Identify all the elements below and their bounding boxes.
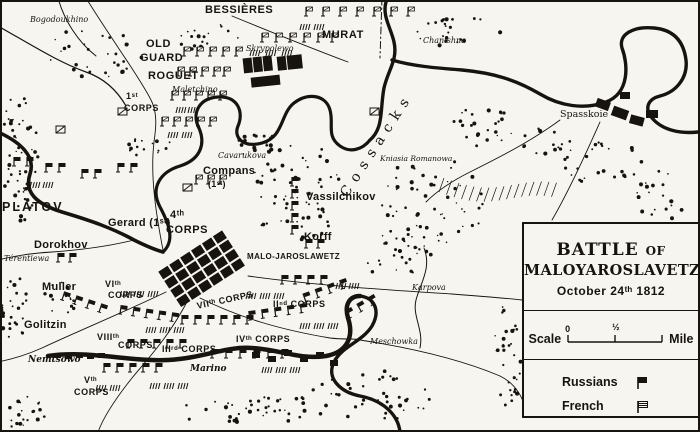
legend-entry-russians: Russians: [562, 370, 698, 394]
map-label-cavarukova: Cavarukova: [218, 152, 266, 160]
legend-title-of: OF: [646, 244, 666, 258]
map-label-spasskoie: Spasskoie: [560, 110, 608, 120]
map-label-murat: MURAT: [322, 30, 364, 41]
legend-date: October 24ᵗʰ 1812: [524, 284, 698, 298]
map-label-corps6-b: CORPS: [108, 291, 143, 300]
map-label-corps5-a: Vᵗʰ: [84, 376, 97, 385]
map-label-compans-a: Compans: [203, 166, 255, 177]
map-label-corps4-a: 4ᵗʰ: [170, 210, 184, 221]
map-label-corps8-a: VIIIᵗʰ: [97, 333, 119, 342]
scale-bar: 0 ½: [567, 323, 663, 347]
map-label-corps6-a: VIᵗʰ: [105, 280, 121, 289]
battle-map: BogodoukhinoBESSIÈRESMURATSkrypolewoOLDG…: [0, 0, 700, 432]
map-label-dorokhov: Dorokhov: [34, 240, 88, 251]
russians-label: Russians: [562, 375, 624, 389]
map-label-corps8-b: CORPS: [118, 341, 153, 350]
map-label-terentiewa: Térentiewa: [4, 255, 49, 263]
map-label-old-guard-2: GUARD: [140, 53, 183, 64]
scale-tick-0: 0: [565, 324, 570, 334]
legend-box: BATTLE OF MALOYAROSLAVETZ October 24ᵗʰ 1…: [522, 222, 698, 418]
map-label-bogodoukhino: Bogodoukhino: [30, 16, 88, 24]
map-label-corps5-b: CORPS: [74, 388, 109, 397]
map-label-karpova: Karpova: [412, 284, 446, 292]
map-label-marino: Marino: [190, 365, 227, 374]
russian-flag-icon: [634, 374, 652, 390]
scale-label: Scale: [529, 332, 562, 347]
legend-divider-2: [524, 359, 698, 360]
map-label-cossacks: Cossacks: [338, 90, 416, 199]
map-label-gerard: Gerard (1ˢᵗ): [108, 218, 171, 229]
map-label-chanishna: Chanishna: [423, 37, 466, 45]
french-flag-icon: [634, 398, 652, 414]
map-label-muller: Muller: [42, 282, 76, 293]
map-label-malo-jaroslawetz: MALO-JAROSLAWETZ: [247, 253, 340, 261]
map-label-compans-b: (1ˢᵗ): [208, 180, 226, 189]
map-label-corps2: IIⁿᵈ CORPS: [273, 300, 326, 309]
map-label-corps1-a: 1ˢᵗ: [126, 92, 138, 101]
map-label-meschowka: Meschowka: [370, 338, 418, 346]
scale-bar-row: Scale 0 ½ Mile: [524, 311, 698, 347]
map-label-platov: PLATOV: [2, 201, 64, 214]
legend-title: BATTLE OF: [524, 240, 698, 260]
legend-title-place: MALOYAROSLAVETZ: [524, 262, 698, 279]
map-label-maletchino: Maletchino: [172, 86, 218, 94]
scale-tick-half: ½: [612, 322, 620, 332]
map-label-corps4iv: IVᵗʰ CORPS: [236, 335, 290, 344]
scale-unit: Mile: [669, 332, 693, 347]
map-label-nemtsowo: Nemtsowo: [28, 356, 80, 365]
map-label-corps4-b: CORPS: [166, 225, 208, 236]
map-label-bessieres: BESSIÈRES: [205, 5, 273, 16]
map-label-corps7: VIIᵗʰ CORPS: [196, 290, 254, 311]
map-label-golitzin: Golitzin: [24, 320, 67, 331]
map-label-kniasia-romanowa: Kniasia Romanowa: [380, 155, 452, 163]
map-label-roguet: ROGUET: [148, 71, 199, 82]
legend-entry-french: French: [562, 394, 698, 418]
map-label-corps1-b: CORPS: [124, 104, 159, 113]
map-label-korff: Korff: [304, 232, 332, 243]
map-label-old-guard-1: OLD: [146, 39, 171, 50]
legend-entries: Russians French: [524, 370, 698, 418]
map-label-vassilchikov: Vassilchikov: [306, 192, 376, 203]
legend-title-battle: BATTLE: [556, 240, 638, 260]
map-label-skrypolewo: Skrypolewo: [246, 45, 294, 53]
map-label-corps3: IIIʳᵈ CORPS: [162, 345, 216, 354]
french-label: French: [562, 399, 624, 413]
